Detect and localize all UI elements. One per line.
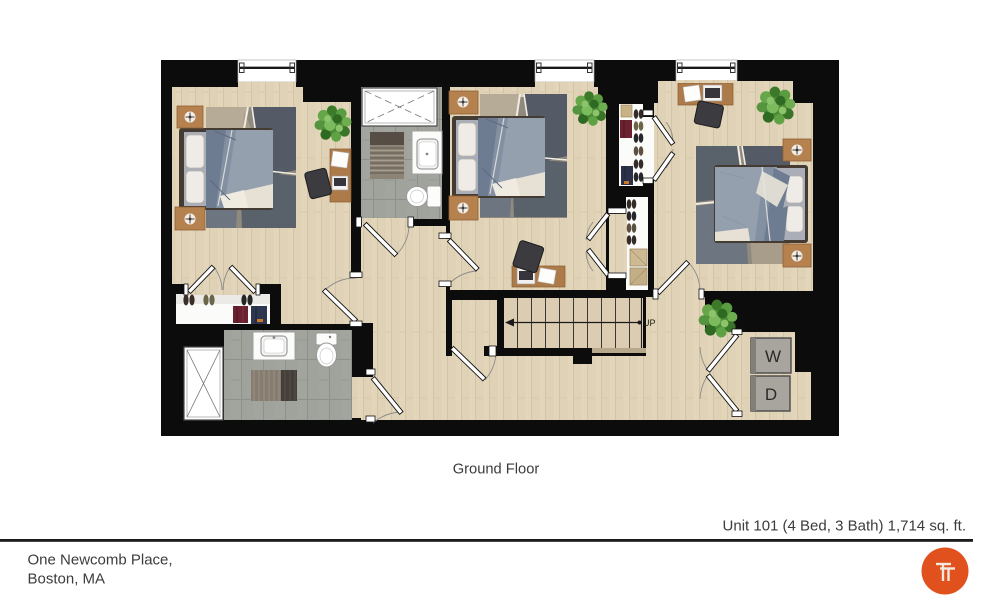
- svg-text:Ground Floor: Ground Floor: [453, 462, 540, 478]
- svg-text:W: W: [765, 347, 781, 366]
- svg-text:D: D: [765, 385, 777, 404]
- svg-text:One Newcomb Place,: One Newcomb Place,: [28, 552, 173, 569]
- svg-text:Boston, MA: Boston, MA: [28, 571, 106, 588]
- svg-text:Unit 101 (4 Bed, 3 Bath) 1,714: Unit 101 (4 Bed, 3 Bath) 1,714 sq. ft.: [723, 518, 966, 535]
- svg-text:UP: UP: [643, 318, 656, 328]
